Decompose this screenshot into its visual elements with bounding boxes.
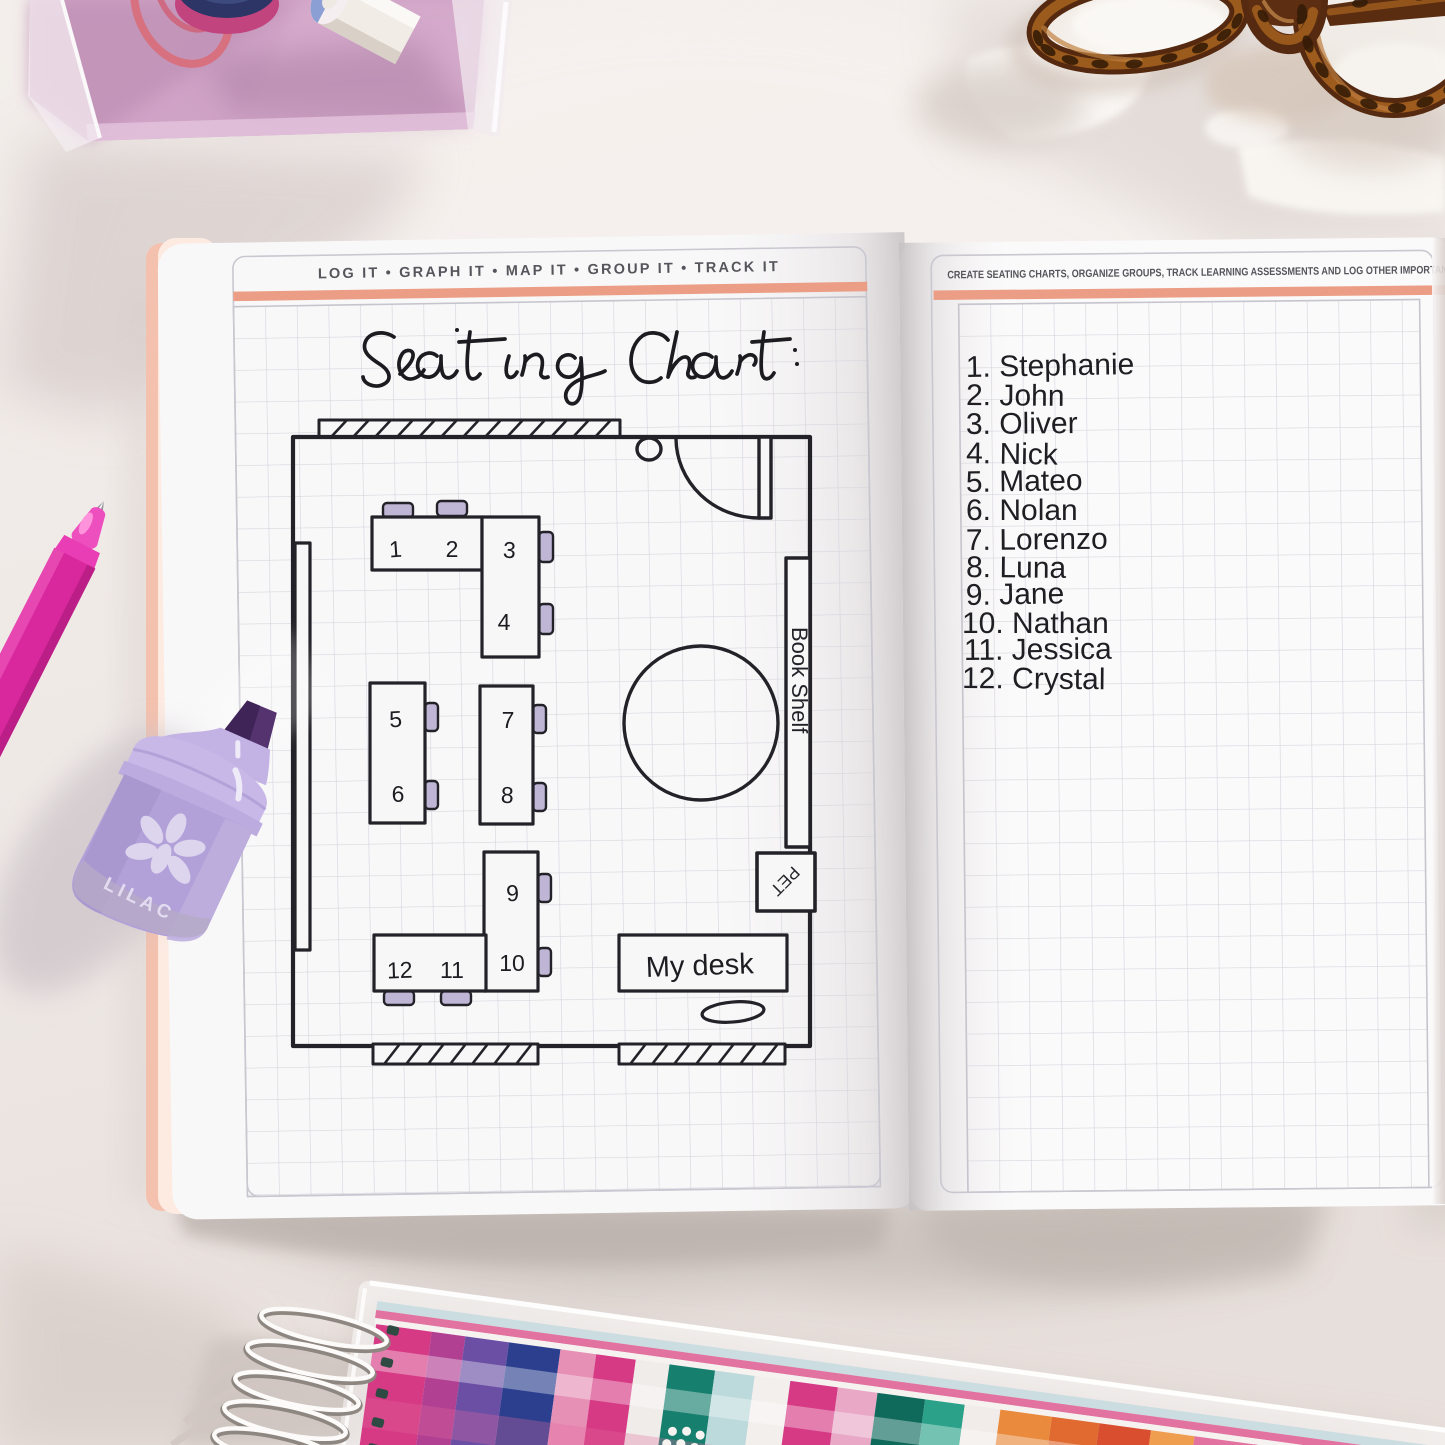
svg-text:My desk: My desk (645, 948, 755, 984)
svg-text:7: 7 (502, 707, 515, 733)
svg-text:1: 1 (388, 536, 403, 563)
svg-text:8: 8 (500, 782, 514, 808)
svg-text:4: 4 (498, 609, 511, 635)
svg-text:9: 9 (506, 880, 520, 907)
svg-text:10: 10 (499, 950, 525, 976)
svg-text:6: 6 (392, 781, 405, 807)
svg-text:3: 3 (502, 537, 516, 564)
svg-text:12. Crystal: 12. Crystal (962, 662, 1106, 696)
svg-text:Book Shelf: Book Shelf (787, 627, 812, 734)
svg-text:6. Nolan: 6. Nolan (966, 494, 1078, 527)
svg-text:12: 12 (386, 957, 412, 984)
svg-text:3. Oliver: 3. Oliver (966, 407, 1078, 441)
svg-text:5: 5 (389, 706, 403, 733)
svg-text:2: 2 (446, 536, 459, 562)
svg-text:11: 11 (440, 957, 464, 983)
